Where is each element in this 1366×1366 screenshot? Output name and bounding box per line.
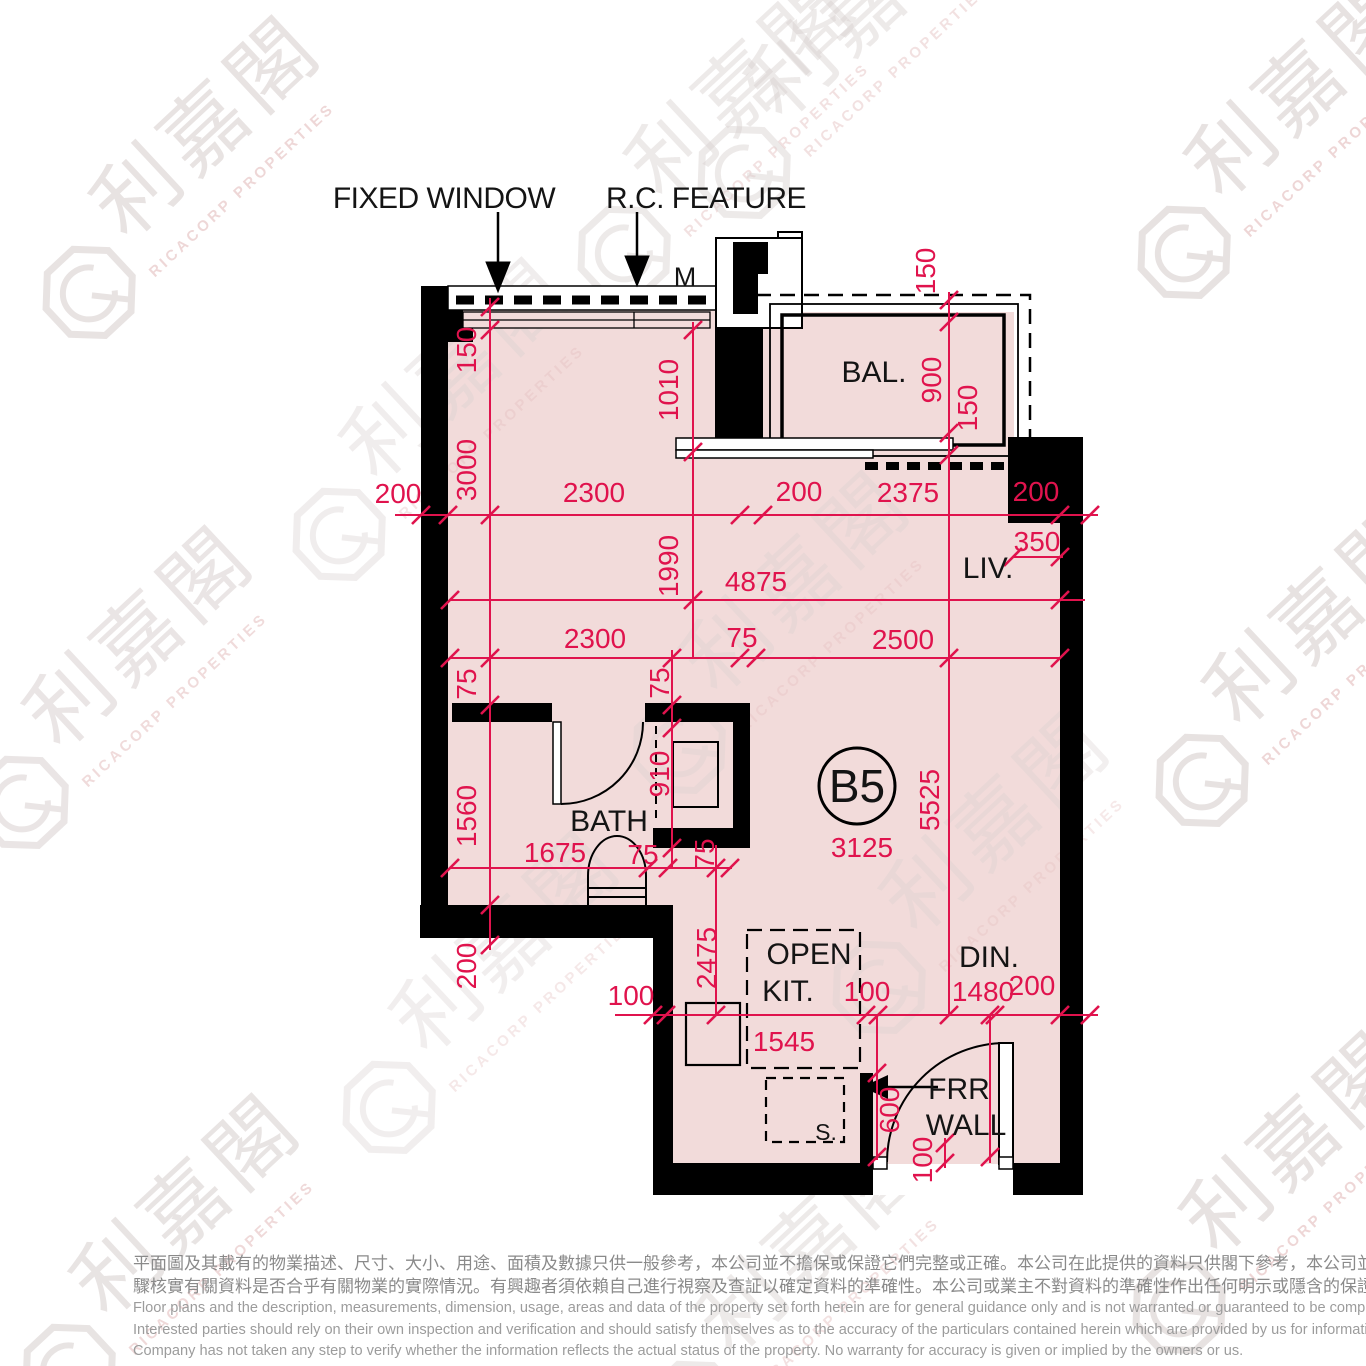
- dim-label: 75: [689, 838, 720, 869]
- dim-label: 100: [907, 1137, 938, 1184]
- dim-label: 3000: [451, 439, 482, 501]
- dim-label: 2375: [877, 477, 939, 508]
- dim-label: 150: [910, 248, 941, 295]
- entrance-door-leaf: [999, 1043, 1013, 1164]
- dim-label: 5525: [914, 769, 945, 831]
- dim-label: 1545: [753, 1026, 815, 1057]
- room-label-dining: DIN.: [959, 941, 1019, 974]
- dim-label: 1675: [524, 837, 586, 868]
- fixed-window-label: FIXED WINDOW: [333, 182, 556, 215]
- rc-feature-label: R.C. FEATURE: [606, 182, 806, 215]
- dim-label: 200: [451, 943, 482, 990]
- room-label-living: LIV.: [963, 552, 1014, 585]
- dim-label: 75: [726, 622, 757, 653]
- dim-label: 200: [375, 478, 422, 509]
- dim-label: 75: [627, 839, 658, 870]
- dim-label: 3125: [831, 832, 893, 863]
- sink-label: S.: [815, 1119, 837, 1145]
- room-label-balcony: BAL.: [841, 356, 906, 389]
- disclaimer-block: 平面圖及其載有的物業描述、尺寸、大小、用途、面積及數據只供一般參考，本公司並不擔…: [133, 1252, 1253, 1363]
- dim-label: 1480: [952, 976, 1014, 1007]
- disclaimer-en-line3: Company has not taken any step to verify…: [133, 1341, 1253, 1363]
- disclaimer-en-line2: Interested parties should rely on their …: [133, 1320, 1253, 1342]
- dim-label: 2300: [563, 477, 625, 508]
- floorplan-page: 利嘉閣 RICACORP PROPERTIES: [0, 0, 1366, 1366]
- dim-label: 600: [874, 1087, 905, 1134]
- dim-label: 200: [1013, 476, 1060, 507]
- meter-label: M: [674, 262, 697, 292]
- room-label-kitchen-line2: KIT.: [762, 975, 814, 1008]
- dim-label: 2500: [872, 624, 934, 655]
- disclaimer-zh-line2: 驟核實有關資料是否合乎有關物業的實際情況。有興趣者須依賴自己進行視察及查証以確定…: [133, 1275, 1253, 1298]
- dim-label: 75: [644, 667, 675, 698]
- bath-door-leaf: [553, 722, 561, 804]
- dim-label: 1990: [653, 535, 684, 597]
- dim-label: 150: [451, 327, 482, 374]
- unit-label: B5: [829, 760, 885, 812]
- dim-label: 100: [608, 980, 655, 1011]
- frr-wall-label-line2: WALL: [926, 1109, 1007, 1142]
- dim-label: 75: [451, 668, 482, 699]
- dim-label: 1010: [653, 359, 684, 421]
- dim-label: 1560: [451, 785, 482, 847]
- dim-label: 900: [916, 357, 947, 404]
- dim-label: 200: [776, 476, 823, 507]
- dim-label: 2475: [691, 927, 722, 989]
- dim-label: 100: [844, 976, 891, 1007]
- dim-label: 2300: [564, 623, 626, 654]
- floorplan-drawing: 利嘉閣 RICACORP PROPERTIES: [0, 0, 1366, 1366]
- dim-label: 200: [1009, 970, 1056, 1001]
- room-label-kitchen-line1: OPEN: [766, 938, 851, 971]
- frr-wall-label-line1: FRR: [928, 1073, 990, 1106]
- room-label-bath: BATH: [570, 805, 648, 838]
- dim-label: 350: [1014, 526, 1061, 557]
- disclaimer-zh-line1: 平面圖及其載有的物業描述、尺寸、大小、用途、面積及數據只供一般參考，本公司並不擔…: [133, 1252, 1253, 1275]
- dim-label: 910: [644, 751, 675, 798]
- disclaimer-en-line1: Floor plans and the description, measure…: [133, 1298, 1253, 1320]
- dim-label: 4875: [725, 566, 787, 597]
- dim-label: 150: [952, 385, 983, 432]
